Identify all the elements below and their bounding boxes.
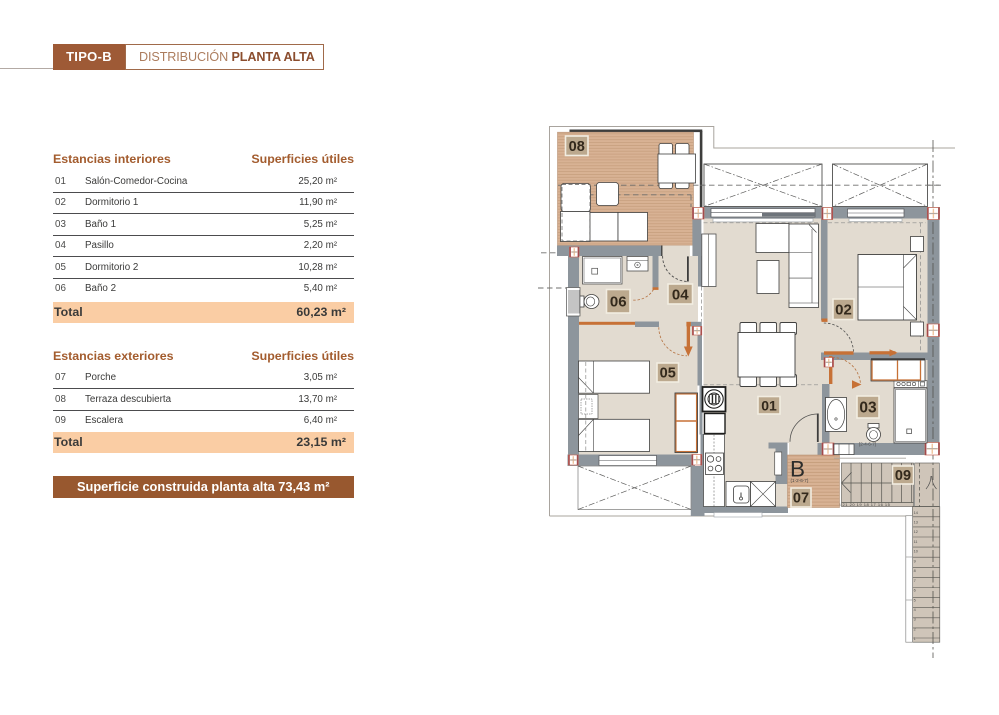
svg-text:01: 01 xyxy=(761,397,777,413)
svg-text:03: 03 xyxy=(859,400,877,417)
svg-text:07: 07 xyxy=(793,491,809,507)
svg-text:09: 09 xyxy=(895,468,911,484)
svg-text:14: 14 xyxy=(914,511,918,515)
svg-text:9: 9 xyxy=(914,559,916,563)
svg-text:13: 13 xyxy=(914,521,918,525)
svg-text:05: 05 xyxy=(660,366,676,382)
svg-text:[2-4-6-7]: [2-4-6-7] xyxy=(859,442,876,447)
svg-text:1: 1 xyxy=(914,637,916,641)
svg-text:6: 6 xyxy=(914,589,916,593)
svg-text:23 21 20 19 18 17 16 15: 23 21 20 19 18 17 16 15 xyxy=(836,502,891,507)
svg-text:02: 02 xyxy=(835,302,852,319)
svg-text:08: 08 xyxy=(569,139,585,155)
svg-text:10: 10 xyxy=(914,550,918,554)
svg-text:04: 04 xyxy=(672,286,689,303)
svg-text:(1-2-6-7): (1-2-6-7) xyxy=(791,478,809,483)
svg-text:06: 06 xyxy=(610,294,627,311)
svg-text:11: 11 xyxy=(914,540,918,544)
svg-text:5: 5 xyxy=(914,598,916,602)
svg-text:2: 2 xyxy=(914,627,916,631)
svg-text:4: 4 xyxy=(914,608,916,612)
svg-text:12: 12 xyxy=(914,530,918,534)
svg-text:3: 3 xyxy=(914,618,916,622)
svg-text:8: 8 xyxy=(914,569,916,573)
svg-text:7: 7 xyxy=(914,579,916,583)
